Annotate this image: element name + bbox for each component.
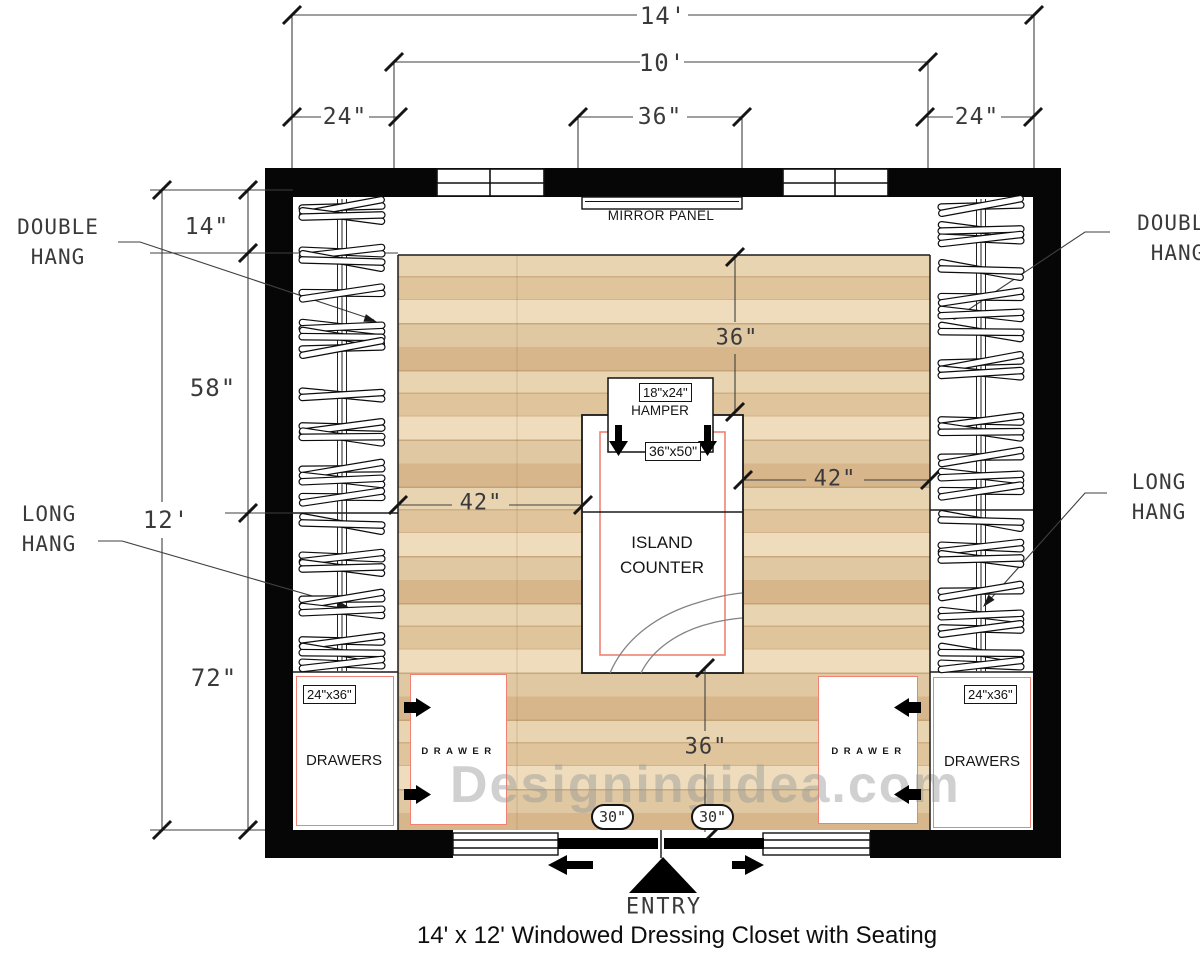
badge-door-left-width: 30" xyxy=(591,804,634,830)
hanger-icon xyxy=(938,234,1024,244)
hanger-icon xyxy=(938,481,1024,500)
dim-entry-clearance: 36" xyxy=(685,735,728,760)
hanger-icon xyxy=(938,428,1024,435)
door-panel-left xyxy=(558,838,658,849)
hanger-icon xyxy=(299,459,385,480)
tag-drawers-right-size: 24"x36" xyxy=(964,685,1017,704)
hanger-icon xyxy=(299,603,385,619)
hanger-icon xyxy=(938,447,1024,468)
hanger-icon xyxy=(299,637,385,646)
hanger-icon xyxy=(299,388,385,403)
hanger-icon xyxy=(299,659,385,669)
entry-track-left xyxy=(453,833,558,855)
hanger-icon xyxy=(938,328,1024,335)
hanger-icon xyxy=(299,656,385,672)
wall-bottom-left xyxy=(265,830,453,858)
label-long-hang-left: LONG HANG xyxy=(0,499,98,559)
hanger-icon xyxy=(299,559,385,577)
hanger-icon xyxy=(299,344,385,353)
badge-door-right-width: 30" xyxy=(691,804,734,830)
hanger-icon xyxy=(299,196,385,218)
hanger-icon xyxy=(299,549,385,565)
hanger-icon xyxy=(938,358,1024,367)
hanger-icon xyxy=(938,657,1024,673)
hanger-icon xyxy=(299,212,385,221)
tag-island-size: 36"x50" xyxy=(645,442,701,461)
hanger-icon xyxy=(938,422,1024,441)
dim-mirror-width: 36" xyxy=(638,104,683,130)
hanger-icon xyxy=(299,513,385,535)
hanger-icon xyxy=(938,517,1024,526)
hanger-icon xyxy=(938,620,1024,638)
hanger-icon xyxy=(938,625,1024,634)
wall-left xyxy=(265,168,293,858)
hanger-icon xyxy=(299,289,385,296)
door-slide-arrow-right xyxy=(732,855,764,875)
hanger-icon xyxy=(299,606,385,616)
tag-hamper-size: 18"x24" xyxy=(639,383,692,402)
hanger-icon xyxy=(299,244,385,260)
hanger-icon xyxy=(938,542,1024,552)
dim-long-hang-length: 72" xyxy=(191,664,237,692)
hanger-icon xyxy=(299,493,385,500)
label-entry: ENTRY xyxy=(626,895,702,920)
hanger-icon xyxy=(299,389,385,401)
label-island-counter: ISLAND COUNTER xyxy=(620,530,704,580)
hanger-icon xyxy=(938,555,1024,564)
hanger-icon xyxy=(299,520,385,529)
hanger-icon xyxy=(938,366,1024,381)
hanger-icon xyxy=(299,595,385,602)
hanger-icon xyxy=(299,322,385,332)
hanger-icon xyxy=(299,487,385,506)
hanger-icon xyxy=(938,453,1024,460)
hanger-rod-left xyxy=(299,196,385,672)
hanger-icon xyxy=(299,423,385,432)
hanger-icon xyxy=(938,259,1024,281)
hanger-icon xyxy=(299,257,385,266)
dim-top-return: 14" xyxy=(185,214,230,240)
hanger-icon xyxy=(299,337,385,359)
hanger-icon xyxy=(938,581,1024,602)
hanger-icon xyxy=(938,351,1024,373)
hanger-icon xyxy=(938,587,1024,594)
hanger-icon xyxy=(299,283,385,302)
hanger-icon xyxy=(938,226,1024,235)
dim-right-closet-depth: 24" xyxy=(955,104,1000,130)
label-double-hang-right: DOUBLE HANG xyxy=(1118,208,1200,268)
hanger-icon xyxy=(938,412,1024,430)
hanger-icon xyxy=(299,552,385,562)
dim-overall-depth: 12' xyxy=(141,506,191,534)
hanger-icon xyxy=(938,417,1024,426)
hanger-icon xyxy=(299,427,385,446)
wall-right xyxy=(1033,168,1061,858)
hanger-icon xyxy=(299,564,385,573)
hanger-icon xyxy=(938,367,1024,379)
page-title: 14' x 12' Windowed Dressing Closet with … xyxy=(417,922,937,950)
hanger-icon xyxy=(299,465,385,472)
label-long-hang-right: LONG HANG xyxy=(1120,467,1198,527)
hanger-icon xyxy=(299,649,385,656)
label-hamper: HAMPER xyxy=(631,403,689,418)
hanger-icon xyxy=(299,632,385,650)
hanger-icon xyxy=(938,231,1024,247)
hanger-rod-right xyxy=(938,195,1024,673)
hanger-icon xyxy=(938,471,1024,481)
label-drawers-left: DRAWERS xyxy=(306,752,382,769)
hanger-icon xyxy=(938,539,1024,555)
hanger-icon xyxy=(938,487,1024,494)
hanger-icon xyxy=(938,293,1024,300)
hanger-icon xyxy=(938,202,1024,211)
hanger-icon xyxy=(299,475,385,485)
wall-bottom-right xyxy=(870,830,1061,858)
dim-overall-width: 14' xyxy=(640,2,686,30)
hanger-icon xyxy=(938,610,1024,620)
hanger-icon xyxy=(938,468,1024,484)
label-drawer-tower-left: DRAWER xyxy=(421,746,496,757)
hanger-icon xyxy=(938,607,1024,623)
dim-left-closet-depth: 24" xyxy=(323,104,368,130)
hanger-icon xyxy=(299,247,385,257)
label-mirror-panel: MIRROR PANEL xyxy=(608,208,715,223)
wall-top xyxy=(265,168,1061,197)
hanger-icon xyxy=(938,195,1024,217)
hanger-icon xyxy=(938,287,1024,306)
hanger-icon xyxy=(938,266,1024,275)
hanger-icon xyxy=(299,207,385,225)
hanger-icon xyxy=(938,322,1024,343)
door-panel-right xyxy=(664,838,764,849)
hanger-icon xyxy=(938,309,1024,319)
dim-mirror-clearance: 36" xyxy=(716,326,759,351)
hanger-icon xyxy=(299,327,385,348)
entry-track-right xyxy=(763,833,870,855)
hanger-icon xyxy=(938,660,1024,670)
entry-arrow-icon xyxy=(629,857,697,893)
hanger-icon xyxy=(938,643,1024,664)
dim-double-hang-length: 58" xyxy=(190,374,236,402)
dim-island-clearance-right: 42" xyxy=(814,467,857,492)
floor-plan: Designingidea.com xyxy=(0,0,1200,960)
hanger-icon xyxy=(299,333,385,340)
dim-island-clearance-left: 42" xyxy=(460,491,503,516)
hanger-icon xyxy=(938,221,1024,239)
label-drawer-tower-right: DRAWER xyxy=(831,746,906,757)
hanger-icon xyxy=(938,550,1024,568)
hanger-icon xyxy=(299,643,385,664)
hanger-icon xyxy=(299,203,385,212)
label-drawers-right: DRAWERS xyxy=(944,753,1020,770)
dim-open-floor-width: 10' xyxy=(639,49,685,77)
hanger-icon xyxy=(299,319,385,335)
tag-drawers-left-size: 24"x36" xyxy=(303,685,356,704)
hanger-icon xyxy=(938,649,1024,656)
hanger-icon xyxy=(299,433,385,440)
hanger-icon xyxy=(938,306,1024,322)
label-double-hang-left: DOUBLE HANG xyxy=(2,212,114,272)
hanger-icon xyxy=(299,472,385,488)
hanger-icon xyxy=(299,418,385,436)
hanger-icon xyxy=(938,510,1024,532)
hanger-icon xyxy=(299,250,385,272)
door-slide-arrow-left xyxy=(548,855,593,875)
hanger-icon xyxy=(299,589,385,610)
